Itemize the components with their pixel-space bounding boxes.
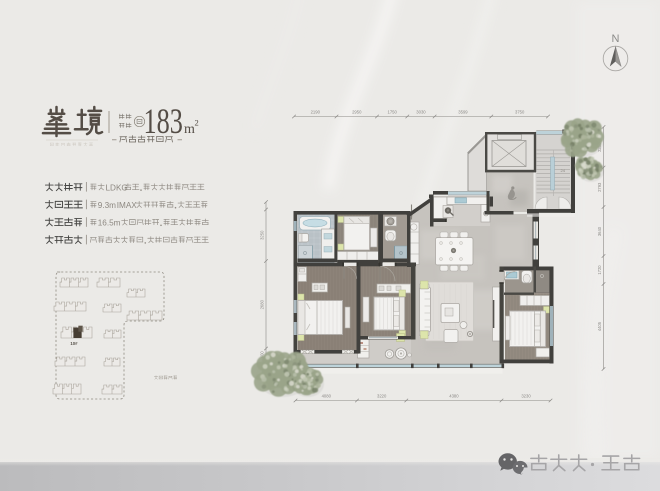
svg-text:m: m: [184, 122, 195, 137]
svg-text:3599: 3599: [458, 110, 468, 115]
svg-text:2950: 2950: [352, 110, 362, 115]
svg-text:IMAX: IMAX: [117, 201, 138, 210]
svg-text:2680: 2680: [260, 299, 265, 309]
svg-text:3640: 3640: [597, 226, 602, 236]
svg-text:3750: 3750: [515, 110, 525, 115]
svg-text:2190: 2190: [311, 110, 321, 115]
svg-text:3230: 3230: [521, 394, 531, 399]
svg-text:4080: 4080: [322, 394, 332, 399]
svg-text:4405: 4405: [597, 321, 602, 331]
svg-text:N: N: [612, 33, 620, 45]
svg-text:183: 183: [144, 101, 183, 141]
svg-text:4380: 4380: [449, 394, 459, 399]
svg-text:16.5m: 16.5m: [98, 219, 121, 228]
svg-text:3220: 3220: [377, 394, 387, 399]
svg-text:9.3m: 9.3m: [98, 201, 116, 210]
svg-text:LDKG: LDKG: [106, 184, 128, 193]
svg-text:10#: 10#: [70, 341, 78, 346]
svg-text:3030: 3030: [416, 110, 426, 115]
svg-text:3250: 3250: [260, 230, 265, 240]
svg-text:1750: 1750: [387, 110, 397, 115]
svg-text:2: 2: [195, 118, 199, 128]
svg-text:24: 24: [561, 168, 566, 173]
svg-text:2793: 2793: [597, 182, 602, 192]
svg-text:1720: 1720: [597, 265, 602, 275]
